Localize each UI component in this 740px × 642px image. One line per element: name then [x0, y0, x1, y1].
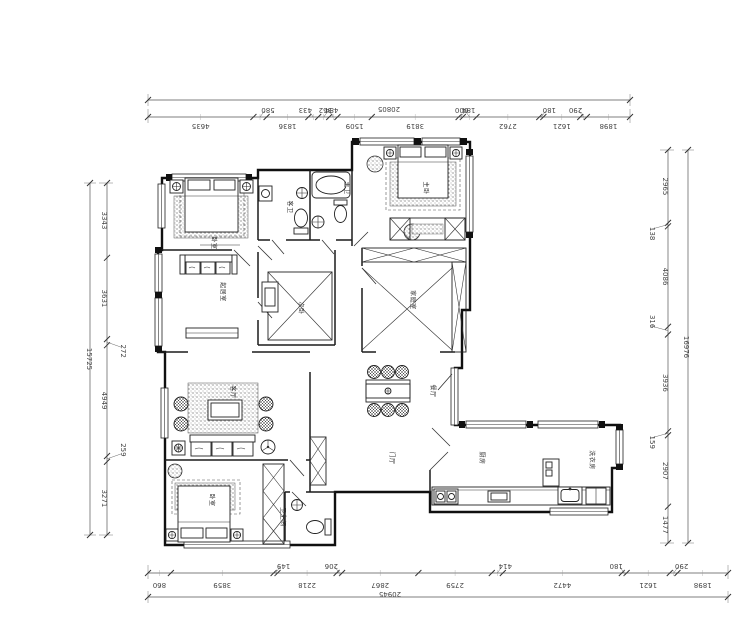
dim-chain-right: 2965138408631639361592907147716976: [648, 147, 694, 546]
room-label-bedroom-small: 次卧: [297, 301, 305, 314]
window: [155, 254, 162, 292]
room-label-bedroom-tl: 卧室: [210, 236, 218, 249]
window: [466, 156, 473, 232]
dining-chair: [368, 404, 381, 417]
window: [550, 508, 608, 515]
dim-label: 3271: [100, 489, 108, 507]
dim-label: 1898: [600, 122, 618, 130]
room-label-living: 客厅: [229, 385, 237, 398]
room-label-bath-master: 主卫: [343, 181, 351, 194]
window: [451, 368, 458, 425]
armchair: [174, 417, 188, 431]
dim-label: 4472: [553, 581, 571, 589]
kitchen-sink-icon: [558, 487, 582, 504]
fridge-icon: [586, 488, 606, 504]
sofa-arm: [232, 255, 237, 274]
bedroom-top-left: [170, 178, 253, 245]
dining-chair: [368, 366, 381, 379]
dim-label: 3343: [100, 212, 108, 230]
dining-chair: [396, 366, 409, 379]
plant-icon: [367, 156, 383, 172]
window: [155, 298, 162, 346]
desk: [262, 282, 278, 312]
dim-label: 2907: [661, 462, 669, 480]
dim-label: 2867: [371, 581, 389, 589]
window: [422, 138, 460, 145]
dim-label: 4949: [100, 392, 108, 410]
dim-label: 159: [648, 436, 656, 449]
window: [466, 421, 526, 428]
nightstand: [231, 529, 243, 541]
dim-label: 259: [119, 443, 127, 456]
dim-label: 3819: [406, 122, 424, 130]
sofa-cushion: [233, 442, 253, 456]
dining-chair: [396, 404, 409, 417]
dim-label: 272: [119, 344, 127, 357]
dim-label: 433: [299, 106, 312, 114]
side-table: [172, 441, 185, 455]
dim-label: 580: [261, 106, 274, 114]
dim-label: 206: [324, 562, 338, 570]
wardrobe: [390, 218, 465, 240]
ceiling-fan-icon: [261, 440, 275, 454]
dim-label: 1477: [661, 516, 669, 534]
sofa-cushion: [216, 262, 230, 274]
room-labels: 卧室 起居室 次卧 客卫 主卫 主卧 家庭室 客厅 餐厅 卧室 卫生间 门厅 厨…: [208, 181, 596, 526]
nightstand: [240, 180, 253, 193]
floor-plan-page: 4635580183643348436215093819184600276218…: [0, 0, 740, 642]
nightstand: [384, 147, 396, 159]
sofa-cushion: [201, 262, 215, 274]
sofa-cushion: [212, 442, 232, 456]
dim-chain-top: 4635580183643348436215093819184600276218…: [145, 94, 633, 130]
living-room: [172, 383, 275, 456]
master-bedroom: [367, 145, 465, 240]
washer-icon: [259, 186, 272, 201]
dim-label: 2762: [499, 122, 517, 130]
guest-bathroom: [259, 186, 308, 234]
dim-label: 600: [455, 106, 468, 114]
room-label-bath-bl: 卫生间: [279, 507, 287, 527]
stove-icon: [434, 489, 458, 504]
dining-room: [366, 366, 410, 417]
dim-label: 860: [153, 581, 166, 589]
nightstand: [166, 529, 178, 541]
dim-label: 1509: [346, 122, 364, 130]
nightstand: [450, 147, 462, 159]
plant-icon: [168, 464, 182, 478]
dim-label: 1621: [639, 581, 657, 589]
sink-icon: [292, 500, 303, 511]
room-label-bath-guest: 客卫: [286, 200, 294, 213]
floor-plan-svg: 4635580183643348436215093819184600276218…: [0, 0, 740, 642]
armchair: [259, 417, 273, 431]
tall-cabinet: [543, 459, 559, 486]
window: [616, 430, 623, 464]
dim-label: 149: [277, 562, 290, 570]
room-label-kitchen: 厨房: [478, 451, 486, 464]
dim-label: 16976: [682, 336, 690, 359]
dim-label: 2759: [446, 581, 464, 589]
hall-cabinet: [310, 437, 326, 485]
kitchen: [432, 459, 610, 505]
bottom-bathroom: [292, 500, 332, 536]
dim-chain-left: 334336312724949259327115725: [84, 180, 127, 538]
room-label-sitting: 起居室: [219, 282, 227, 302]
dim-label: 3936: [661, 374, 669, 392]
sofa-back: [190, 435, 255, 442]
small-bedroom: [262, 272, 332, 340]
appliance-box: [488, 491, 510, 502]
dim-label: 180: [610, 562, 623, 570]
dim-label: 1621: [553, 122, 571, 130]
window: [360, 138, 414, 145]
sofa-arm: [180, 255, 185, 274]
dim-label: 290: [675, 562, 688, 570]
dining-chair: [382, 404, 395, 417]
bed: [178, 486, 230, 542]
wardrobe: [263, 464, 284, 544]
dim-label: 1836: [278, 122, 296, 130]
toilet-icon: [307, 519, 332, 535]
dim-label: 180: [543, 106, 556, 114]
sitting-room: [180, 255, 238, 338]
dim-label: 2218: [298, 581, 316, 589]
sofa-cushion: [186, 262, 200, 274]
toilet-icon: [334, 200, 347, 223]
dim-label: 4086: [661, 268, 669, 286]
dim-label: 138: [648, 227, 656, 240]
nightstand: [170, 180, 183, 193]
dim-label: 15725: [85, 348, 93, 370]
toilet-icon: [294, 209, 308, 234]
dim-label: 362: [319, 106, 332, 114]
dim-chain-bottom: 8603859149221820628672759414447218016212…: [145, 562, 731, 603]
dim-label: 20805: [378, 105, 400, 113]
dim-label: 20945: [379, 590, 401, 598]
dim-label: 1898: [694, 581, 712, 589]
room-label-dining: 餐厅: [429, 384, 437, 397]
dim-label: 4635: [192, 122, 210, 130]
bed: [185, 178, 238, 232]
window: [158, 184, 165, 228]
room-label-utility: 洗衣房: [588, 450, 596, 470]
master-bathroom: [312, 172, 350, 228]
bedroom-bottom-left: [166, 464, 284, 544]
dining-chair: [382, 366, 395, 379]
room-label-family: 家庭室: [409, 290, 417, 310]
sink-icon: [297, 188, 308, 199]
room-label-bedroom-master: 主卧: [422, 181, 430, 194]
doors: [234, 232, 452, 506]
sofa-back: [185, 255, 232, 262]
sofa-cushion: [191, 442, 211, 456]
armchair: [259, 397, 273, 411]
room-label-bedroom-bl: 卧室: [208, 493, 216, 506]
window: [161, 388, 168, 438]
dim-label: 290: [569, 106, 582, 114]
room-label-hall: 门厅: [388, 451, 396, 464]
window: [538, 421, 598, 428]
dim-label: 2965: [661, 178, 669, 196]
dim-label: 3859: [213, 581, 231, 589]
dim-label: 414: [498, 562, 512, 570]
sink-icon: [312, 216, 324, 228]
dim-label: 3631: [100, 290, 108, 308]
dim-label: 316: [648, 315, 656, 329]
armchair: [174, 397, 188, 411]
